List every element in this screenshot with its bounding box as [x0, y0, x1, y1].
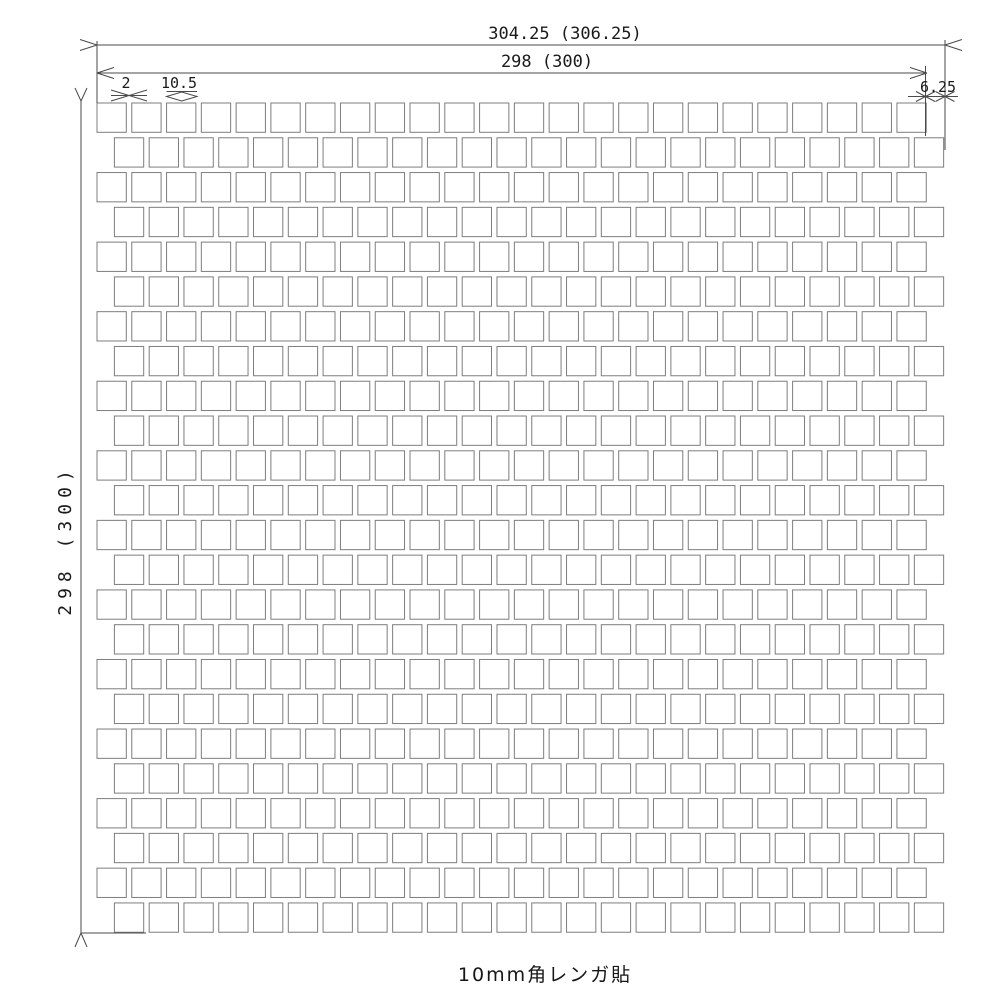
tile: [201, 799, 230, 828]
tile: [97, 312, 126, 341]
tile: [97, 868, 126, 897]
tile: [358, 903, 387, 932]
tile: [358, 346, 387, 375]
tile: [410, 242, 439, 271]
tile: [393, 277, 422, 306]
tile: [375, 520, 404, 549]
tile: [810, 694, 839, 723]
tile: [584, 451, 613, 480]
tile: [723, 520, 752, 549]
tile: [775, 207, 804, 236]
tile: [254, 277, 283, 306]
tile: [880, 625, 909, 654]
tile: [236, 451, 265, 480]
tile: [914, 625, 943, 654]
tile: [532, 207, 561, 236]
tile: [688, 659, 717, 688]
tile: [340, 103, 369, 132]
tile: [497, 416, 526, 445]
tile: [567, 555, 596, 584]
tile: [793, 173, 822, 202]
tile: [653, 381, 682, 410]
tile: [340, 799, 369, 828]
tile: [254, 486, 283, 515]
tile: [810, 277, 839, 306]
tile: [793, 520, 822, 549]
tile: [636, 207, 665, 236]
tile: [810, 138, 839, 167]
tile: [723, 451, 752, 480]
tile: [167, 242, 196, 271]
tile: [167, 520, 196, 549]
tile: [340, 451, 369, 480]
tile: [427, 346, 456, 375]
tile: [480, 173, 509, 202]
tile: [288, 555, 317, 584]
tile: [671, 555, 700, 584]
tile: [393, 138, 422, 167]
tile: [567, 694, 596, 723]
tile: [236, 590, 265, 619]
tile: [862, 312, 891, 341]
tile: [375, 173, 404, 202]
tile: [827, 173, 856, 202]
tile: [462, 138, 491, 167]
tile: [514, 520, 543, 549]
tile: [793, 381, 822, 410]
tile: [653, 520, 682, 549]
tile: [393, 903, 422, 932]
tile: [375, 799, 404, 828]
tile: [758, 381, 787, 410]
tile: [271, 799, 300, 828]
tile: [480, 242, 509, 271]
tile: [149, 346, 178, 375]
tile: [706, 833, 735, 862]
tile: [897, 590, 926, 619]
tile: [514, 659, 543, 688]
tile: [393, 555, 422, 584]
tile: [410, 451, 439, 480]
tile: [636, 694, 665, 723]
tile: [149, 833, 178, 862]
tile: [514, 242, 543, 271]
tile: [514, 868, 543, 897]
tile: [288, 764, 317, 793]
tile: [97, 520, 126, 549]
tile: [567, 833, 596, 862]
tile: [480, 451, 509, 480]
tile: [97, 659, 126, 688]
tile: [514, 312, 543, 341]
tile: [236, 381, 265, 410]
tile: [167, 590, 196, 619]
tile: [862, 799, 891, 828]
tile: [427, 277, 456, 306]
tile: [497, 903, 526, 932]
tile: [219, 346, 248, 375]
tile: [845, 555, 874, 584]
tile: [358, 833, 387, 862]
tile: [758, 799, 787, 828]
tile: [306, 729, 335, 758]
tile: [132, 729, 161, 758]
tile: [358, 625, 387, 654]
tile: [775, 138, 804, 167]
tile: [375, 451, 404, 480]
tile: [323, 207, 352, 236]
tile: [497, 625, 526, 654]
tile: [671, 764, 700, 793]
tile: [445, 868, 474, 897]
tile: [219, 555, 248, 584]
dim-label-sheet-width: 298 (300): [447, 54, 647, 71]
tile: [914, 416, 943, 445]
tile: [288, 694, 317, 723]
tile: [914, 903, 943, 932]
tile: [236, 173, 265, 202]
tile: [793, 312, 822, 341]
tile: [671, 277, 700, 306]
tile: [114, 486, 143, 515]
tile: [271, 381, 300, 410]
tile: [445, 103, 474, 132]
tile: [340, 590, 369, 619]
tile: [497, 207, 526, 236]
tile: [653, 312, 682, 341]
tile: [723, 590, 752, 619]
tile: [845, 764, 874, 793]
tile: [775, 416, 804, 445]
tile: [827, 659, 856, 688]
tile: [601, 207, 630, 236]
tile: [132, 520, 161, 549]
tile: [706, 416, 735, 445]
tile: [236, 103, 265, 132]
tile: [149, 694, 178, 723]
tile: [653, 242, 682, 271]
tile: [410, 729, 439, 758]
tile: [323, 625, 352, 654]
tile: [862, 242, 891, 271]
tile: [514, 729, 543, 758]
tile: [706, 555, 735, 584]
tile: [653, 729, 682, 758]
tile: [375, 103, 404, 132]
tile: [323, 346, 352, 375]
tile: [567, 346, 596, 375]
tile: [706, 346, 735, 375]
tile: [184, 207, 213, 236]
tile: [114, 277, 143, 306]
tile: [462, 625, 491, 654]
tile-sheet-drawing: [0, 0, 1000, 1000]
tile: [862, 590, 891, 619]
tile: [897, 799, 926, 828]
tile: [358, 486, 387, 515]
tile: [132, 242, 161, 271]
tile: [688, 242, 717, 271]
tile: [740, 903, 769, 932]
tile: [219, 486, 248, 515]
tile: [114, 764, 143, 793]
tile: [410, 659, 439, 688]
tile: [897, 312, 926, 341]
tile: [706, 764, 735, 793]
tile: [584, 659, 613, 688]
tile: [480, 381, 509, 410]
tile: [288, 486, 317, 515]
tile: [653, 173, 682, 202]
tile-grid: [97, 103, 944, 932]
tile: [462, 346, 491, 375]
tile: [706, 277, 735, 306]
tile: [219, 903, 248, 932]
tile: [601, 486, 630, 515]
tile: [184, 555, 213, 584]
tile: [410, 381, 439, 410]
tile: [601, 833, 630, 862]
tile: [340, 659, 369, 688]
tile: [671, 416, 700, 445]
tile: [827, 520, 856, 549]
tile: [219, 416, 248, 445]
tile: [288, 833, 317, 862]
tile: [671, 346, 700, 375]
tile: [201, 451, 230, 480]
tile: [288, 903, 317, 932]
tile: [601, 346, 630, 375]
tile: [549, 799, 578, 828]
tile: [549, 868, 578, 897]
tile: [740, 207, 769, 236]
dim-label-row-offset: 6.25: [908, 80, 968, 95]
tile: [201, 312, 230, 341]
tile: [288, 207, 317, 236]
tile: [827, 451, 856, 480]
tile: [845, 694, 874, 723]
tile: [723, 868, 752, 897]
tile: [897, 381, 926, 410]
tile: [758, 868, 787, 897]
tile: [740, 486, 769, 515]
tile: [584, 729, 613, 758]
tile: [601, 277, 630, 306]
tile: [549, 242, 578, 271]
tile: [132, 312, 161, 341]
tile: [671, 138, 700, 167]
tile: [636, 486, 665, 515]
tile: [688, 868, 717, 897]
tile: [114, 207, 143, 236]
tile: [393, 486, 422, 515]
tile: [167, 312, 196, 341]
tile: [880, 555, 909, 584]
tile: [97, 799, 126, 828]
tile: [688, 173, 717, 202]
tile: [323, 138, 352, 167]
tile: [740, 625, 769, 654]
tile: [567, 207, 596, 236]
tile: [358, 694, 387, 723]
tile: [827, 381, 856, 410]
tile: [497, 694, 526, 723]
tile: [480, 868, 509, 897]
tile: [914, 833, 943, 862]
tile: [514, 799, 543, 828]
tile: [427, 694, 456, 723]
tile: [254, 625, 283, 654]
tile: [462, 764, 491, 793]
tile: [306, 381, 335, 410]
tile: [723, 242, 752, 271]
tile: [323, 764, 352, 793]
tile: [497, 764, 526, 793]
tile: [584, 173, 613, 202]
tile: [793, 451, 822, 480]
arrow-sheet-height-top: [75, 88, 87, 101]
tile: [184, 346, 213, 375]
tile: [793, 659, 822, 688]
tile: [532, 346, 561, 375]
tile: [201, 173, 230, 202]
tile: [480, 103, 509, 132]
tile: [288, 416, 317, 445]
tile: [306, 242, 335, 271]
tile: [184, 138, 213, 167]
tile: [340, 381, 369, 410]
tile: [271, 451, 300, 480]
tile: [758, 103, 787, 132]
tile: [775, 625, 804, 654]
tile: [619, 590, 648, 619]
tile: [636, 416, 665, 445]
tile: [358, 207, 387, 236]
tile: [514, 590, 543, 619]
tile: [775, 555, 804, 584]
tile: [497, 346, 526, 375]
dim-label-joint: 2: [106, 76, 146, 91]
tile: [845, 277, 874, 306]
tile: [827, 103, 856, 132]
tile: [445, 520, 474, 549]
tile: [914, 346, 943, 375]
tile: [306, 799, 335, 828]
tile: [167, 799, 196, 828]
tile: [323, 694, 352, 723]
tile: [480, 659, 509, 688]
tile: [445, 242, 474, 271]
tile: [445, 799, 474, 828]
tile: [97, 381, 126, 410]
tile: [114, 694, 143, 723]
tile: [132, 590, 161, 619]
tile: [514, 381, 543, 410]
tile: [636, 138, 665, 167]
tile: [358, 764, 387, 793]
tile: [254, 694, 283, 723]
tile: [480, 520, 509, 549]
tile: [393, 764, 422, 793]
tile: [410, 868, 439, 897]
tile: [427, 625, 456, 654]
tile: [619, 659, 648, 688]
tile: [688, 381, 717, 410]
tile: [410, 590, 439, 619]
tile: [897, 868, 926, 897]
tile: [775, 694, 804, 723]
tile: [584, 381, 613, 410]
tile: [740, 346, 769, 375]
tile: [740, 694, 769, 723]
tile: [688, 799, 717, 828]
tile: [827, 729, 856, 758]
tile: [914, 694, 943, 723]
tile: [288, 346, 317, 375]
tile: [636, 833, 665, 862]
tile: [219, 138, 248, 167]
tile: [775, 346, 804, 375]
tile: [167, 381, 196, 410]
tile: [254, 764, 283, 793]
tile: [427, 833, 456, 862]
tile: [740, 555, 769, 584]
dim-label-sheet-height: 298 (300): [57, 464, 75, 616]
tile: [149, 277, 178, 306]
tile: [775, 764, 804, 793]
tile: [549, 729, 578, 758]
tile: [323, 416, 352, 445]
tile: [340, 173, 369, 202]
tile: [636, 764, 665, 793]
tile: [445, 173, 474, 202]
tile: [619, 103, 648, 132]
tile: [201, 729, 230, 758]
tile: [775, 903, 804, 932]
tile: [306, 103, 335, 132]
tile: [532, 486, 561, 515]
tile: [793, 868, 822, 897]
tile: [619, 173, 648, 202]
tile: [201, 659, 230, 688]
tile: [619, 520, 648, 549]
tile: [636, 903, 665, 932]
tile: [375, 242, 404, 271]
tile: [480, 590, 509, 619]
tile: [323, 555, 352, 584]
tile: [219, 625, 248, 654]
tile: [149, 207, 178, 236]
tile: [688, 729, 717, 758]
tile: [740, 764, 769, 793]
tile: [375, 729, 404, 758]
tile: [358, 277, 387, 306]
tile: [549, 312, 578, 341]
tile: [114, 625, 143, 654]
tile: [810, 346, 839, 375]
tile: [236, 659, 265, 688]
tile: [619, 312, 648, 341]
tile: [340, 729, 369, 758]
tile: [584, 590, 613, 619]
tile: [567, 625, 596, 654]
tile: [114, 346, 143, 375]
tile: [167, 173, 196, 202]
tile: [236, 729, 265, 758]
tile: [184, 764, 213, 793]
tile: [323, 486, 352, 515]
tile: [306, 590, 335, 619]
